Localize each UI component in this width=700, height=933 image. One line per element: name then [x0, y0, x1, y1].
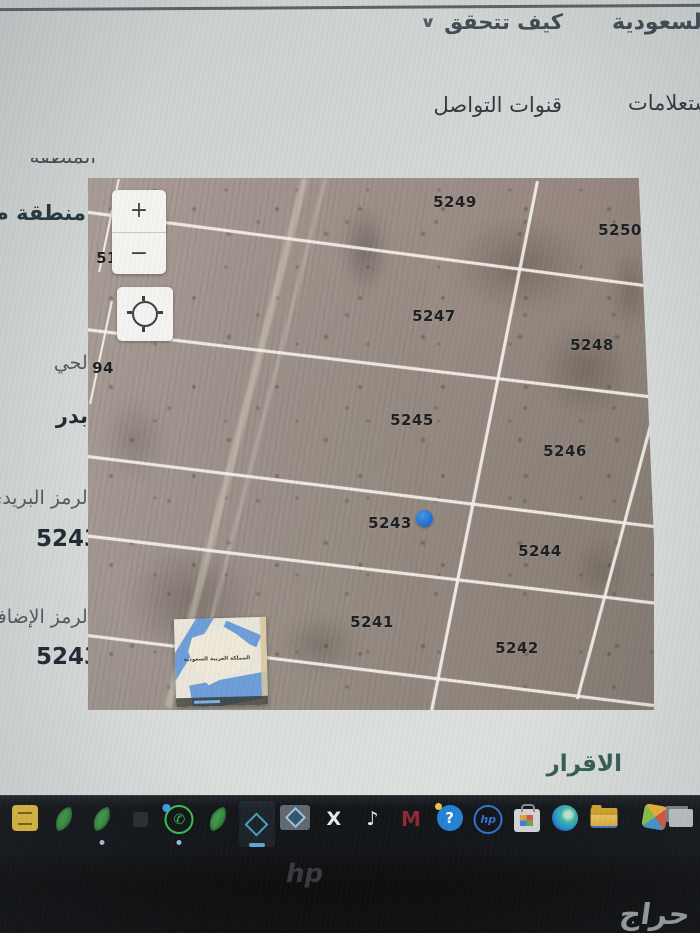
chevron-down-icon: ∨: [420, 13, 436, 31]
window-top-edge: [0, 4, 700, 11]
haraj-watermark: حراج: [618, 897, 693, 931]
m-app-icon[interactable]: M: [397, 805, 425, 845]
vegetation-patch: [90, 380, 180, 500]
window-app-icon[interactable]: [667, 805, 695, 845]
zoom-out-button[interactable]: −: [112, 233, 166, 275]
hp-laptop-logo: hp: [286, 859, 323, 889]
how-to-verify-menu[interactable]: ∨ كيف تتحقق: [422, 10, 563, 34]
zoom-control: + −: [112, 190, 166, 274]
district-value: بدر: [56, 404, 88, 428]
notes-app-icon[interactable]: [11, 805, 39, 845]
running-indicator: [177, 840, 182, 845]
hp-support-icon[interactable]: ?: [436, 805, 464, 845]
leaf-app-icon-3[interactable]: [204, 805, 232, 845]
parcel-label-5248: 5248: [570, 336, 614, 354]
photos-icon[interactable]: [629, 805, 657, 845]
laptop-bezel: hp حراج: [0, 855, 700, 933]
leaf-app-icon-2[interactable]: [88, 805, 116, 845]
region-label-partial: المنطقة: [24, 158, 96, 171]
locate-icon: [132, 301, 158, 327]
parcel-label-5244: 5244: [518, 542, 562, 560]
location-marker[interactable]: [416, 510, 433, 527]
region-value: منطقة م: [0, 201, 86, 225]
active-indicator: [249, 843, 265, 847]
parcel-label-94: 94: [92, 359, 114, 377]
tiktok-icon[interactable]: ♪: [358, 805, 386, 845]
diamond-grey-app-icon[interactable]: [281, 805, 309, 845]
x-app-icon[interactable]: X: [320, 805, 348, 845]
parcel-label-5242: 5242: [495, 639, 539, 657]
notification-badge: [163, 804, 171, 812]
locate-button[interactable]: [117, 287, 173, 341]
parcel-label-5249: 5249: [433, 193, 477, 211]
parcel-label-5250: 5250: [598, 221, 642, 239]
additional-code-label: الرمز الإضافي: [0, 606, 93, 628]
taskbar: ✆X♪M?hp: [0, 795, 700, 856]
parcel-map[interactable]: 5249525052475248524552465243524452415242…: [88, 178, 654, 710]
nav-inquiries[interactable]: استعلامات: [628, 91, 700, 115]
file-explorer-icon[interactable]: [590, 805, 618, 845]
whatsapp-icon[interactable]: ✆: [165, 805, 193, 845]
hp-app-icon[interactable]: hp: [474, 805, 502, 845]
brand-text: السعودية: [612, 10, 700, 35]
parcel-label-5243: 5243: [368, 514, 412, 532]
declaration-heading: الاقرار: [546, 751, 622, 777]
zoom-in-button[interactable]: +: [112, 190, 166, 233]
leaf-app-icon[interactable]: [50, 805, 78, 845]
dim-app-icon[interactable]: [127, 805, 155, 845]
running-indicator: [100, 840, 105, 845]
nav-contact-channels[interactable]: قنوات التواصل: [434, 93, 563, 117]
how-to-verify-label: كيف تتحقق: [444, 10, 563, 34]
edge-icon[interactable]: [551, 805, 579, 845]
store-icon[interactable]: [513, 805, 541, 845]
postal-code-label: الرمز البريدي: [0, 487, 93, 509]
parcel-label-5245: 5245: [390, 411, 434, 429]
overview-inset-map: المملكة العربية السعودية: [174, 617, 268, 707]
parcel-label-5246: 5246: [543, 442, 587, 460]
diamond-active-app-icon[interactable]: [243, 805, 271, 845]
parcel-label-5247: 5247: [412, 307, 456, 325]
parcel-label-5241: 5241: [350, 613, 394, 631]
